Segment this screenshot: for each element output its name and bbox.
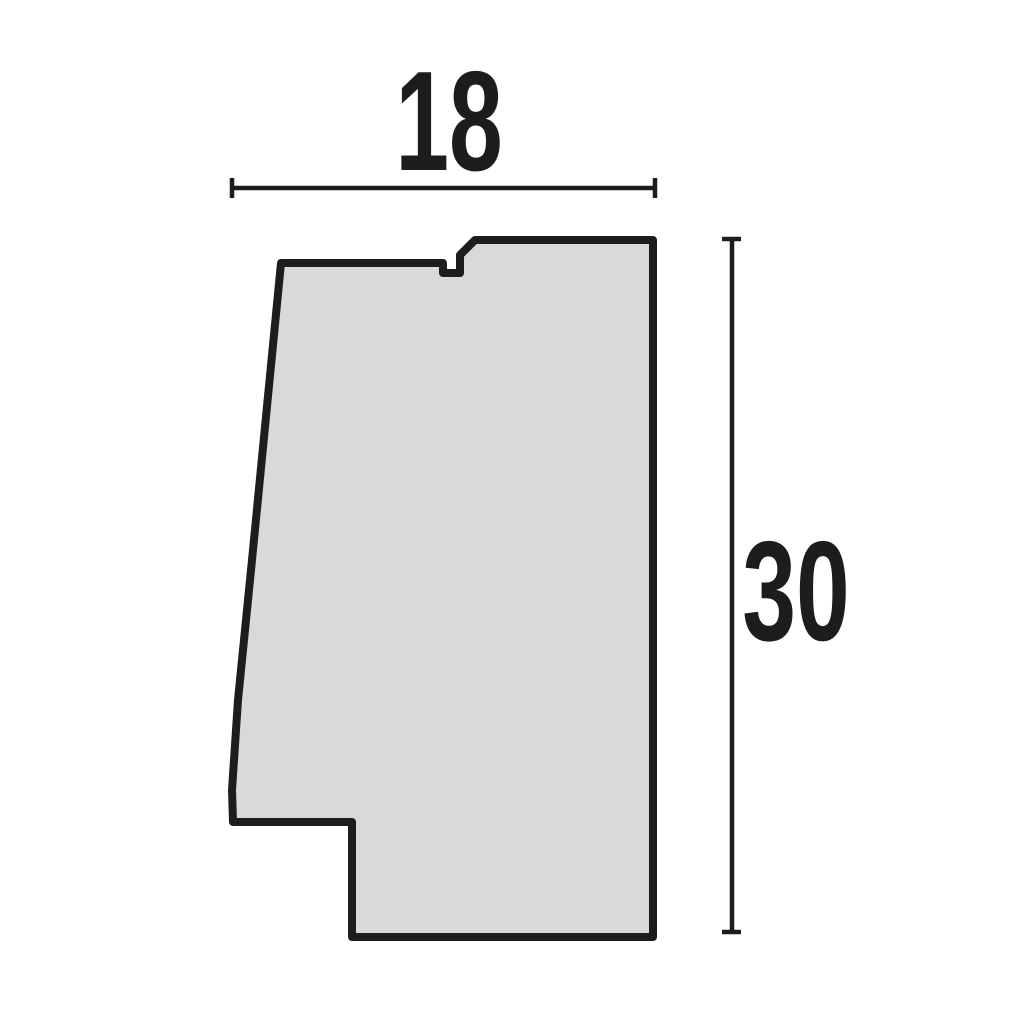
moulding-profile-diagram: 18 30 <box>0 0 1024 1024</box>
profile-cross-section-shape <box>232 240 653 937</box>
diagram-canvas: 18 30 <box>0 0 1024 1024</box>
width-dimension-label-group: 18 <box>395 41 502 200</box>
height-dimension-label: 30 <box>742 511 849 670</box>
width-dimension-label: 18 <box>395 41 502 200</box>
height-dimension-label-group: 30 <box>742 511 849 670</box>
height-dimension: 30 <box>722 239 850 932</box>
width-dimension: 18 <box>232 41 655 200</box>
